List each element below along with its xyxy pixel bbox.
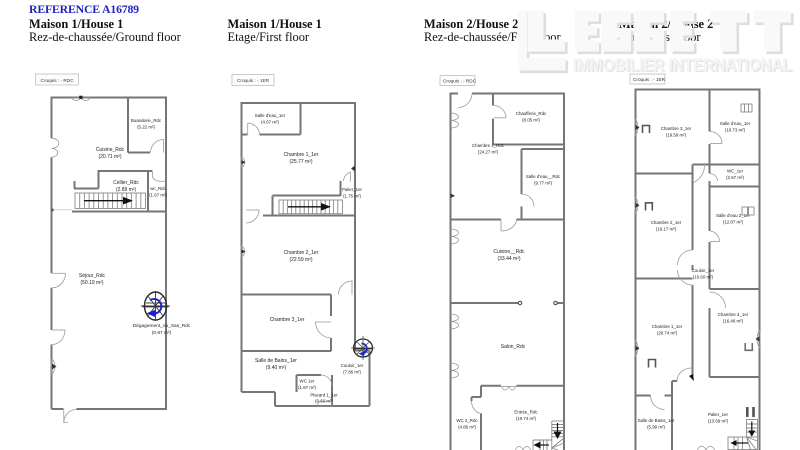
svg-text:Chambre 3_1er: Chambre 3_1er xyxy=(661,126,692,131)
svg-text:Chambre 2_1er: Chambre 2_1er xyxy=(284,250,319,256)
svg-text:Croquis : - 1ER: Croquis : - 1ER xyxy=(633,77,666,82)
svg-text:(9.77 m²): (9.77 m²) xyxy=(534,181,552,186)
svg-text:(10.60 m²): (10.60 m²) xyxy=(693,275,714,280)
svg-text:Palier_1er: Palier_1er xyxy=(708,412,729,417)
svg-text:Placard 1_1er: Placard 1_1er xyxy=(310,393,338,398)
svg-text:(22.59 m²): (22.59 m²) xyxy=(289,257,312,263)
svg-text:(5.99 m²): (5.99 m²) xyxy=(647,425,665,430)
svg-text:(1.67 m²): (1.67 m²) xyxy=(149,193,167,198)
svg-text:WC 1er: WC 1er xyxy=(300,379,315,384)
svg-text:Couloir_1er: Couloir_1er xyxy=(692,268,715,273)
svg-text:Croquis : - RDC: Croquis : - RDC xyxy=(41,78,75,83)
svg-text:(20.71 m²): (20.71 m²) xyxy=(98,154,121,160)
svg-text:Chambre 1_Rdc: Chambre 1_Rdc xyxy=(472,143,505,148)
svg-text:(1.67 m²): (1.67 m²) xyxy=(298,385,316,390)
svg-text:(24.27 m²): (24.27 m²) xyxy=(478,150,499,155)
svg-text:(10.74 m²): (10.74 m²) xyxy=(516,416,537,421)
svg-text:Chambre 4_1er: Chambre 4_1er xyxy=(718,312,749,317)
svg-text:(19.59 m²): (19.59 m²) xyxy=(666,133,687,138)
svg-text:Dégagement_ou_Sas_Rdc: Dégagement_ou_Sas_Rdc xyxy=(133,323,191,329)
svg-text:(2.67 m²): (2.67 m²) xyxy=(726,175,744,180)
svg-text:Salle d'eau__Rdc: Salle d'eau__Rdc xyxy=(526,174,561,179)
svg-text:Chaufferie_Rdc: Chaufferie_Rdc xyxy=(516,111,547,116)
svg-text:(12.87 m²): (12.87 m²) xyxy=(723,220,744,225)
svg-text:wc_Rdc: wc_Rdc xyxy=(150,186,166,191)
svg-text:(5.22 m²): (5.22 m²) xyxy=(137,125,155,130)
svg-text:Cellier_Rdc: Cellier_Rdc xyxy=(113,180,139,186)
svg-text:Couloir_1er: Couloir_1er xyxy=(341,363,364,368)
svg-text:Cuisine_Rdc: Cuisine_Rdc xyxy=(96,147,125,153)
svg-text:(16.46 m²): (16.46 m²) xyxy=(723,319,744,324)
svg-text:(4.67 m²): (4.67 m²) xyxy=(261,120,279,125)
svg-text:(0.87 m²): (0.87 m²) xyxy=(152,330,172,336)
svg-text:(25.77 m²): (25.77 m²) xyxy=(289,159,312,165)
svg-text:(19.17 m²): (19.17 m²) xyxy=(656,227,677,232)
svg-text:Salle d'eau_1er: Salle d'eau_1er xyxy=(255,113,286,118)
svg-text:(33.44 m²): (33.44 m²) xyxy=(497,256,520,262)
svg-text:(13.69 m²): (13.69 m²) xyxy=(708,419,729,424)
svg-text:(1.75 m²): (1.75 m²) xyxy=(343,194,361,199)
svg-text:Croquis : - RDC: Croquis : - RDC xyxy=(443,79,477,84)
svg-text:(2.89 m²): (2.89 m²) xyxy=(116,187,137,193)
svg-text:Buanderie_Rdc: Buanderie_Rdc xyxy=(131,118,162,123)
svg-text:Palier_1er: Palier_1er xyxy=(342,187,363,192)
svg-text:Chambre 3_1er: Chambre 3_1er xyxy=(270,317,305,323)
svg-text:Salon_Rdc: Salon_Rdc xyxy=(501,344,526,350)
svg-text:(7.86 m²): (7.86 m²) xyxy=(343,370,361,375)
svg-text:Salle d'eau_1er: Salle d'eau_1er xyxy=(720,121,751,126)
svg-text:(10.73 m²): (10.73 m²) xyxy=(725,128,746,133)
svg-text:(4.86 m²): (4.86 m²) xyxy=(458,425,476,430)
svg-text:(20.74 m²): (20.74 m²) xyxy=(657,331,678,336)
svg-text:(50.19 m²): (50.19 m²) xyxy=(80,280,103,286)
svg-text:Salle d'eau 2_1er: Salle d'eau 2_1er xyxy=(716,213,751,218)
svg-text:Séjour_Rdc: Séjour_Rdc xyxy=(79,273,106,279)
svg-text:Entrée_Rdc: Entrée_Rdc xyxy=(514,410,538,415)
svg-text:Croquis : - 1ER: Croquis : - 1ER xyxy=(237,78,270,83)
svg-text:(9.40 m²): (9.40 m²) xyxy=(266,365,287,371)
svg-text:WC_1er: WC_1er xyxy=(727,169,744,174)
svg-text:Chambre 1_1er: Chambre 1_1er xyxy=(652,324,683,329)
svg-text:Chambre 2_1er: Chambre 2_1er xyxy=(651,220,682,225)
svg-text:WC 2_Rdc: WC 2_Rdc xyxy=(456,418,478,423)
svg-text:Salle de Bains_1er: Salle de Bains_1er xyxy=(638,418,675,423)
svg-text:Salle de Bains_1er: Salle de Bains_1er xyxy=(255,358,297,364)
svg-text:(8.05 m²): (8.05 m²) xyxy=(522,118,540,123)
svg-text:Chambre 1_1er: Chambre 1_1er xyxy=(284,152,319,158)
svg-text:Cuisine__Rdc: Cuisine__Rdc xyxy=(493,249,525,255)
